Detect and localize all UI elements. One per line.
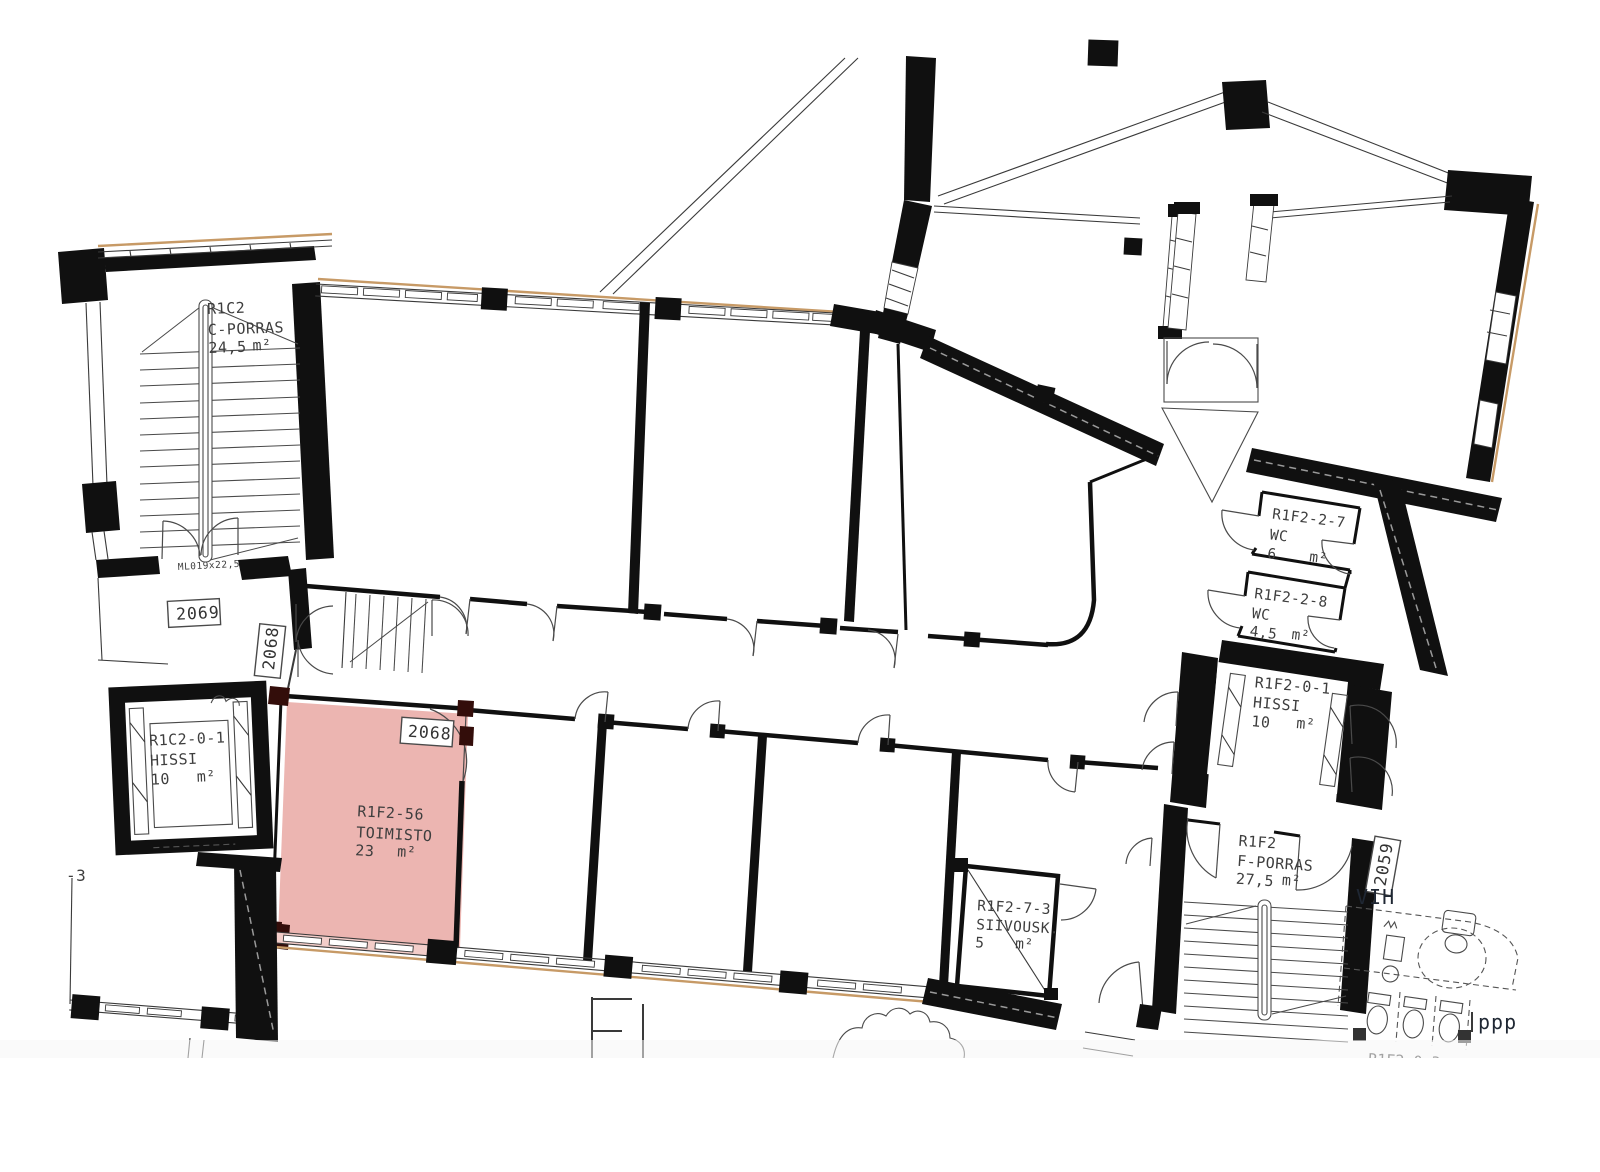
upper-room-walls [628, 302, 906, 630]
roof-edge-lines [600, 58, 858, 294]
balcony-left [69, 852, 282, 1058]
toimisto-unit: m² [397, 842, 417, 861]
door-tag-2068-corridor: 2068 [254, 624, 285, 678]
hissi-right-unit: m² [1296, 714, 1317, 734]
c-porras-unit: m² [252, 336, 272, 355]
room-label-siivousk: R1F2-7-3 SIIVOUSK. 5 m² [975, 898, 1061, 955]
room-label-f-porras: R1F2 F-PORRAS 27,5 m² [1235, 832, 1315, 893]
window-wall-top [315, 278, 839, 329]
wc7-name: WC [1269, 527, 1289, 545]
c-porras-name: C-PORRAS [208, 318, 285, 339]
lower-room-walls [583, 722, 961, 986]
hissi-left-unit: m² [196, 767, 216, 786]
wc8-unit: m² [1291, 627, 1311, 645]
corridor-mini-stair [342, 592, 468, 673]
viewer-fade-band [0, 1040, 1600, 1058]
corridor-top-wall [306, 456, 1154, 668]
hissi-left-area: 10 [150, 770, 170, 789]
wc7-unit: m² [1308, 549, 1328, 567]
level-mark: -3 [66, 866, 86, 885]
door-code-label: ML019x22,5 [178, 559, 241, 573]
toimisto-id: R1F2-56 [357, 802, 425, 823]
site-mark: ppp [1478, 1010, 1517, 1034]
siivousk-name: SIIVOUSK. [976, 917, 1060, 937]
siivousk-area: 5 [975, 935, 985, 951]
wc8-name: WC [1251, 606, 1271, 624]
stairwell-f-stairs [1184, 900, 1348, 1042]
room-label-c-porras: R1C2 C-PORRAS 24,5 m² [207, 297, 285, 357]
hissi-left-name: HISSI [150, 750, 198, 770]
f-porras-unit: m² [1281, 871, 1301, 890]
hissi-left-id: R1C2-0-1 [149, 728, 226, 749]
wc7-area: 6 [1266, 546, 1277, 563]
c-porras-area: 24,5 [208, 338, 247, 357]
siivousk-unit: m² [1015, 936, 1034, 953]
wing-mark: VIH [1356, 885, 1395, 909]
tag-2068-toimisto-text: 2068 [407, 722, 452, 744]
f-porras-id: R1F2 [1238, 832, 1277, 853]
wc7-id: R1F2-2-7 [1271, 507, 1346, 532]
corridor-bottom-wall [468, 692, 1158, 792]
siivousk-id: R1F2-7-3 [977, 898, 1052, 918]
floorplan-viewer: R1C2 C-PORRAS 24,5 m² ML019x22,5 2069 20… [0, 0, 1600, 1172]
c-porras-id: R1C2 [207, 299, 246, 318]
viewer-bottom-blank [0, 1058, 1600, 1172]
toimisto-area: 23 [355, 841, 375, 860]
f-porras-area: 27,5 [1235, 870, 1274, 891]
door-tag-2068-toimisto: 2068 [400, 717, 454, 747]
hissi-right-area: 10 [1251, 712, 1272, 732]
right-wing-walls [878, 39, 1534, 522]
wc8-area: 4,5 [1249, 624, 1278, 643]
floorplan-canvas: R1C2 C-PORRAS 24,5 m² ML019x22,5 2069 20… [0, 0, 1600, 1172]
door-tag-2069: 2069 [167, 599, 220, 628]
stairwell-c-walls [58, 240, 334, 698]
tag-2069-text: 2069 [176, 603, 221, 624]
